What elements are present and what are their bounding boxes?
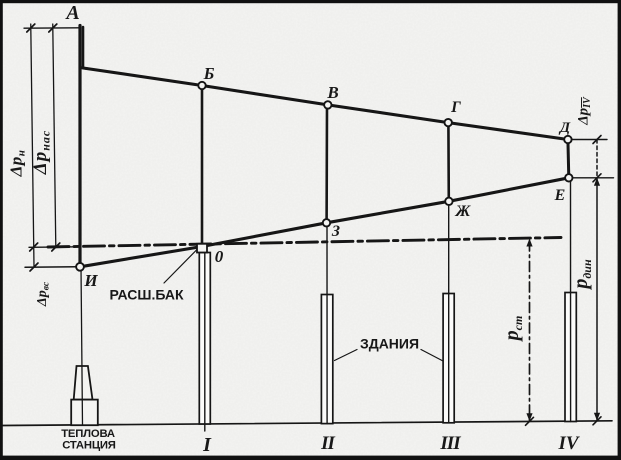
svg-text:III: III: [439, 433, 461, 454]
svg-text:В: В: [326, 83, 338, 102]
svg-text:0: 0: [215, 247, 224, 266]
svg-text:I: I: [202, 434, 212, 456]
svg-text:ЗДАНИЯ: ЗДАНИЯ: [360, 336, 419, 352]
svg-text:Б: Б: [203, 64, 215, 83]
svg-text:Ж: Ж: [455, 203, 472, 220]
svg-text:З: З: [331, 223, 340, 240]
svg-text:РАСШ.БАК: РАСШ.БАК: [109, 287, 184, 303]
svg-text:Г: Г: [450, 99, 461, 116]
svg-text:Е: Е: [554, 187, 566, 204]
svg-text:IV: IV: [557, 433, 579, 454]
svg-text:Д: Д: [558, 120, 571, 136]
svg-text:II: II: [320, 433, 335, 454]
svg-text:А: А: [64, 2, 79, 24]
svg-text:ТЕПЛОВА: ТЕПЛОВА: [61, 428, 115, 440]
svg-text:СТАНЦИЯ: СТАНЦИЯ: [62, 440, 116, 452]
svg-text:И: И: [83, 271, 98, 290]
